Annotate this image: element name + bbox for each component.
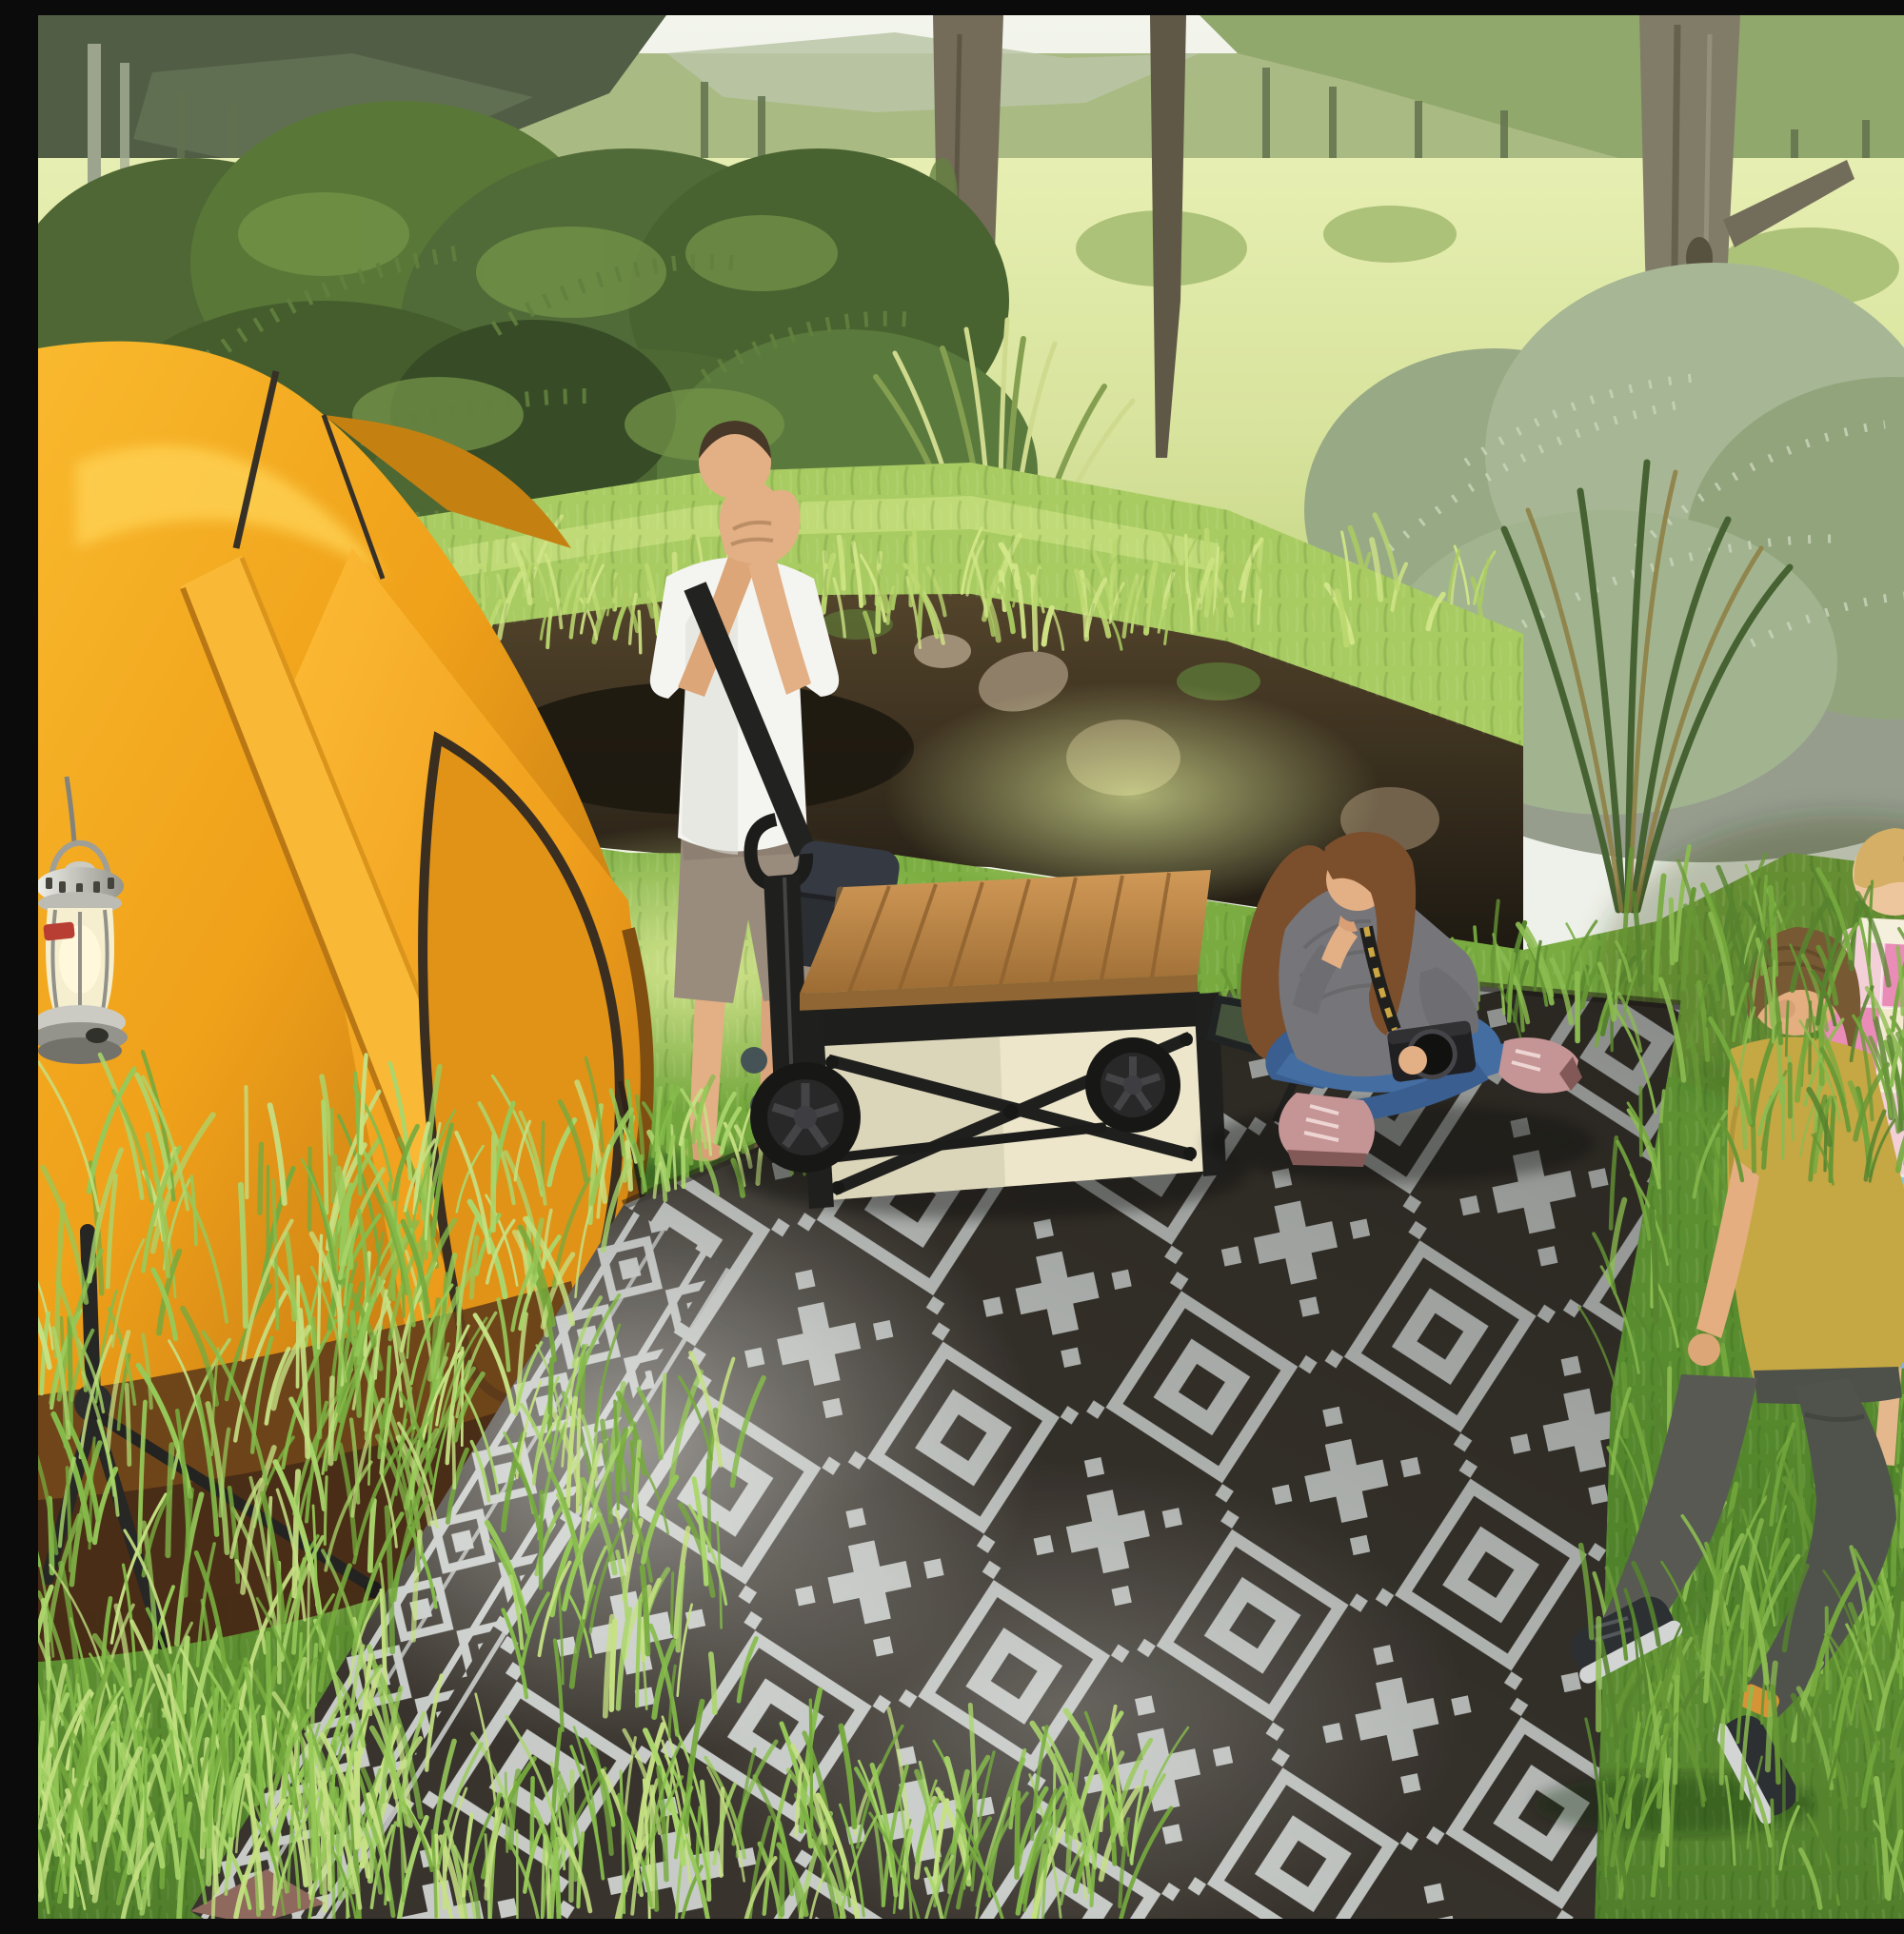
scene-canvas (38, 15, 1904, 1919)
light-wash (38, 15, 1904, 1919)
campsite-photo (38, 15, 1904, 1919)
